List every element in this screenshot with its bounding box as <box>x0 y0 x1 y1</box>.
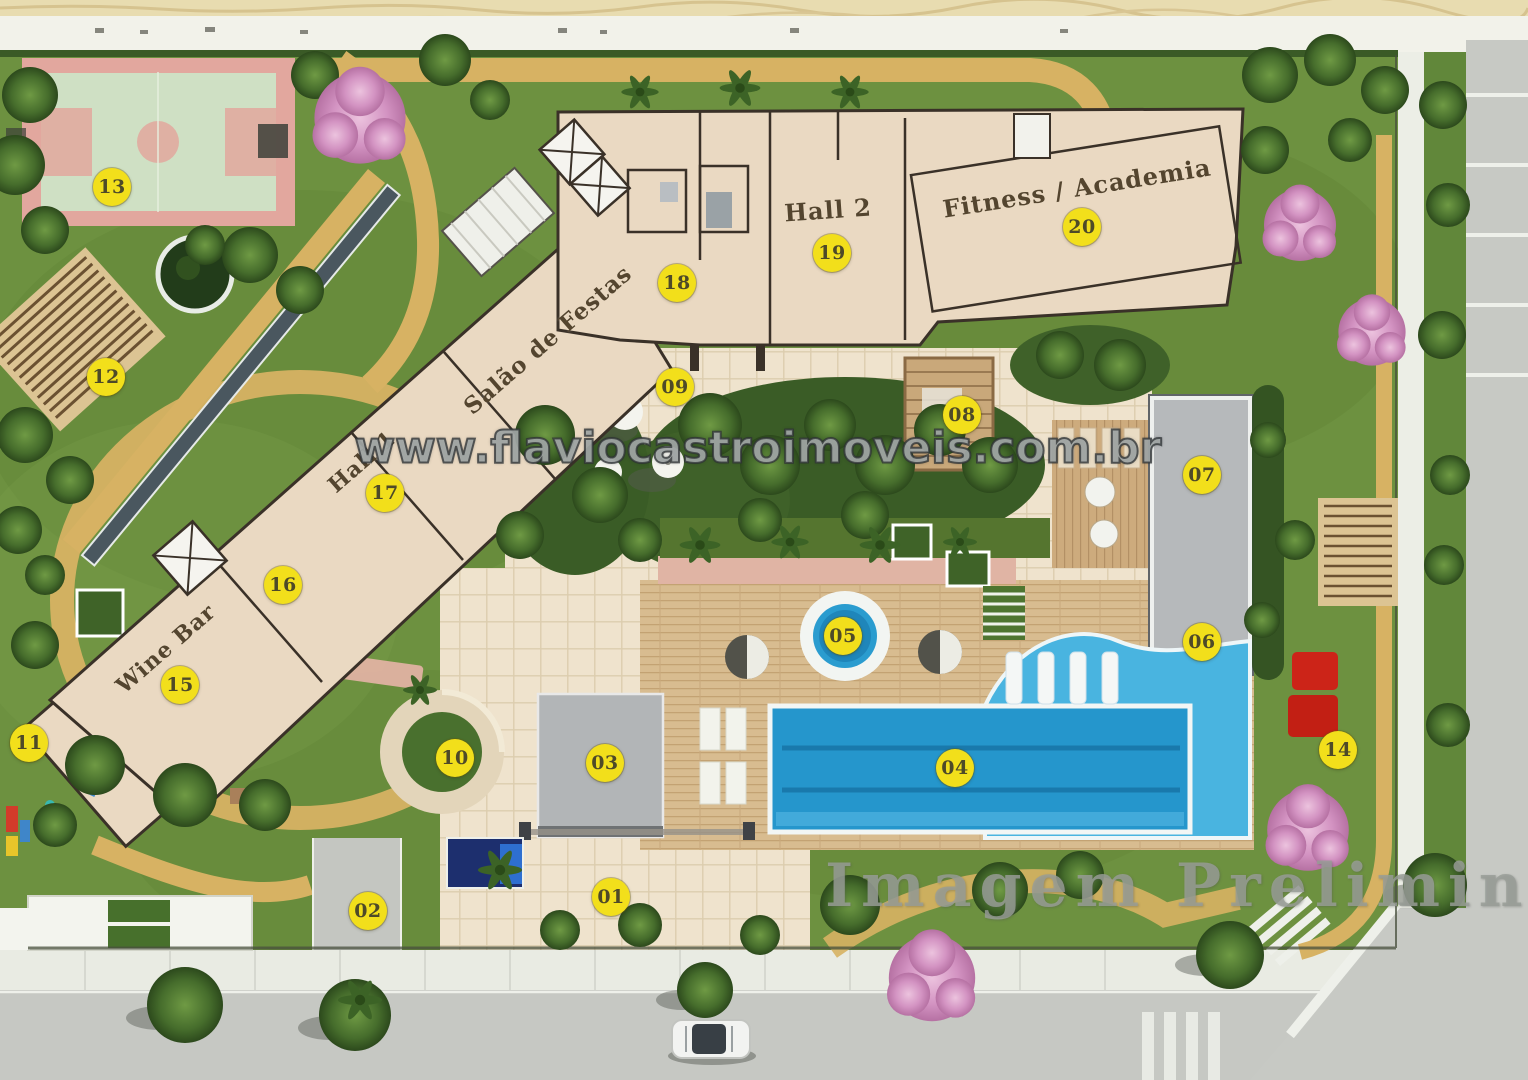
watermark-status: Imagem Preliminar <box>825 851 1528 921</box>
watermark-site-url: www.flaviocastroimoveis.com.br <box>354 423 1161 474</box>
striped-loungers <box>983 586 1025 640</box>
site-plan: Salão de FestasHall 1Hall 2Fitness / Aca… <box>0 0 1528 1080</box>
boardwalk <box>0 16 1528 57</box>
garden-circle <box>380 690 504 814</box>
driveway <box>313 838 401 950</box>
car <box>668 1020 756 1065</box>
tower-roof <box>1148 394 1254 676</box>
spa-circle <box>800 591 890 681</box>
